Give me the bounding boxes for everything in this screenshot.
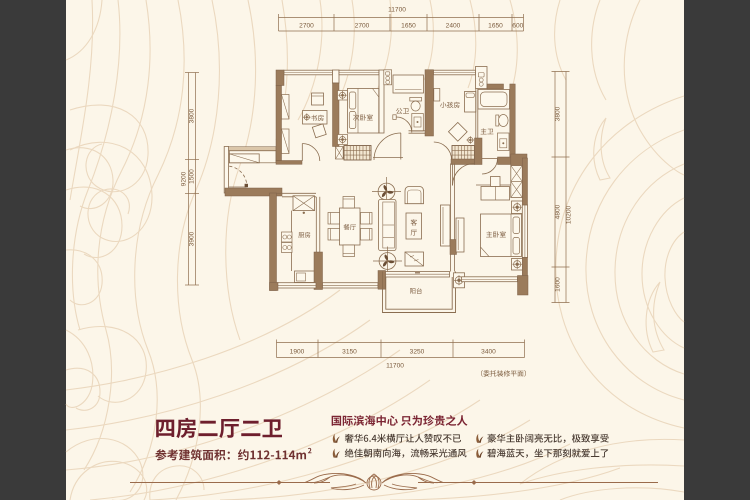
svg-text:1650: 1650 <box>488 23 503 30</box>
svg-text:1900: 1900 <box>290 349 305 356</box>
svg-text:11700: 11700 <box>386 363 404 370</box>
svg-text:1500: 1500 <box>189 169 196 184</box>
svg-text:11700: 11700 <box>388 7 406 14</box>
svg-text:10200: 10200 <box>566 206 573 225</box>
svg-text:2400: 2400 <box>446 23 461 30</box>
svg-text:1650: 1650 <box>401 23 416 30</box>
svg-text:3400: 3400 <box>481 349 496 356</box>
svg-text:3800: 3800 <box>189 108 196 123</box>
svg-text:600: 600 <box>512 23 523 30</box>
svg-text:1600: 1600 <box>555 277 562 292</box>
svg-text:4800: 4800 <box>555 204 562 219</box>
svg-text:9200: 9200 <box>181 171 188 186</box>
svg-text:3150: 3150 <box>342 349 357 356</box>
svg-text:2700: 2700 <box>355 23 370 30</box>
svg-text:3900: 3900 <box>189 231 196 246</box>
svg-text:3800: 3800 <box>555 106 562 121</box>
svg-text:2700: 2700 <box>299 23 314 30</box>
svg-text:3250: 3250 <box>410 349 425 356</box>
